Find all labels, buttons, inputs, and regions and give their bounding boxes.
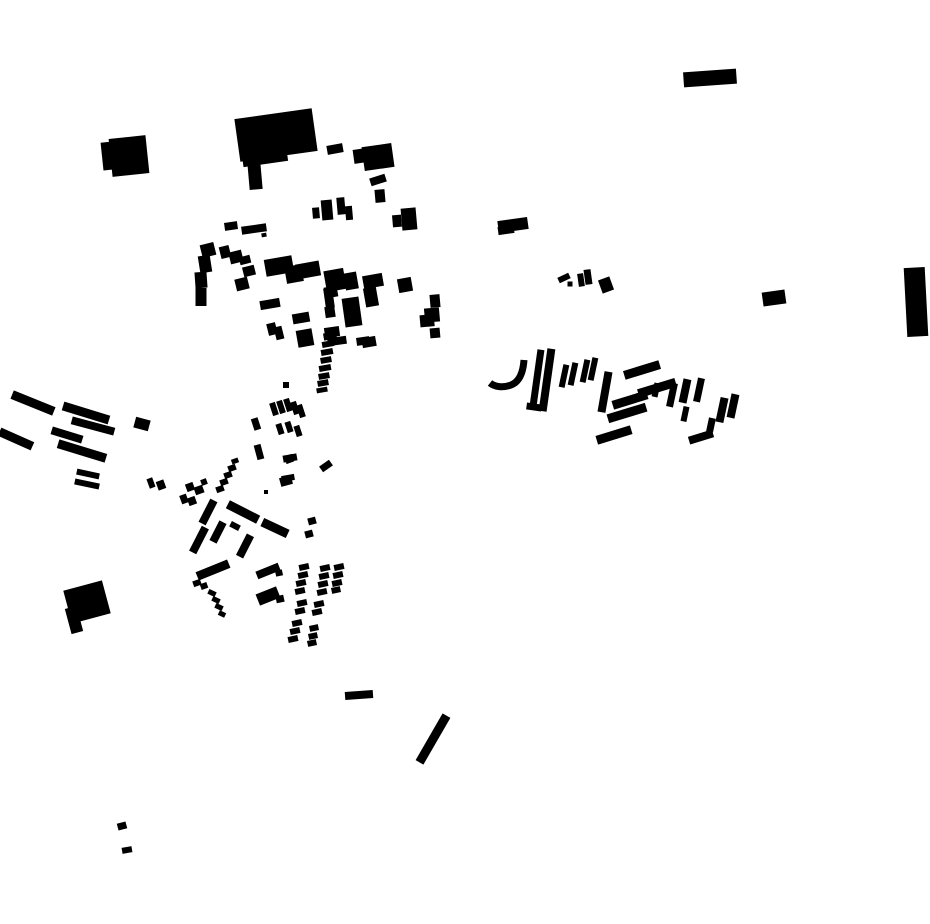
- building-footprint: [904, 267, 929, 337]
- building-footprint: [361, 143, 394, 171]
- building-footprint: [374, 189, 385, 203]
- building-footprint: [264, 490, 268, 494]
- building-footprint: [429, 294, 440, 308]
- building-footprint: [401, 207, 418, 230]
- building-footprint: [109, 135, 150, 177]
- building-footprint: [419, 315, 428, 328]
- building-footprint: [261, 233, 267, 238]
- building-footprint: [194, 272, 207, 289]
- building-footprint: [296, 328, 315, 348]
- building-footprint: [321, 200, 334, 221]
- building-footprint: [196, 288, 207, 306]
- building-footprint: [397, 277, 413, 293]
- building-footprint: [247, 162, 262, 190]
- building-footprint: [568, 282, 573, 287]
- building-footprint: [324, 285, 339, 298]
- building-footprint: [345, 206, 353, 221]
- building-footprint-map: [0, 0, 930, 924]
- building-footprint: [324, 306, 335, 318]
- building-footprint: [312, 207, 320, 219]
- map-viewport: [0, 0, 930, 924]
- building-footprint: [336, 197, 345, 215]
- building-footprint: [283, 382, 289, 388]
- building-footprint: [392, 215, 402, 228]
- building-footprint: [430, 328, 441, 339]
